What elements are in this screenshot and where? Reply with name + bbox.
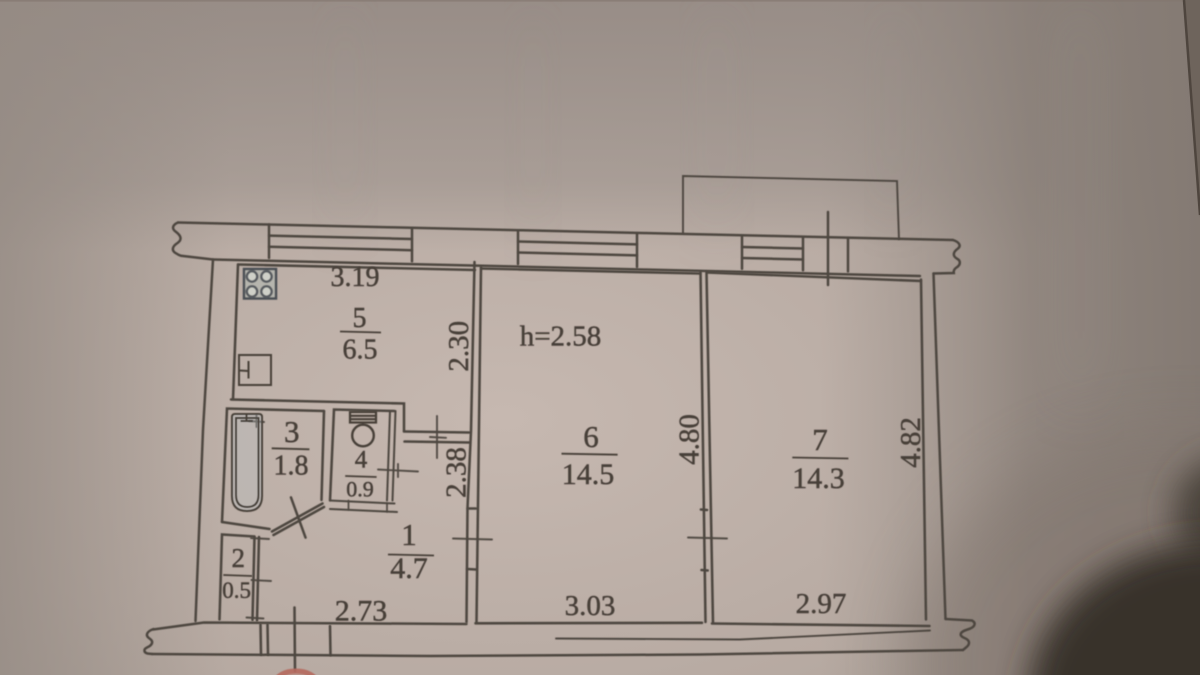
svg-text:2.30: 2.30 — [443, 321, 475, 372]
svg-text:7: 7 — [812, 422, 828, 457]
svg-text:0.9: 0.9 — [346, 477, 374, 502]
svg-text:4: 4 — [355, 447, 368, 474]
svg-text:0.5: 0.5 — [222, 578, 251, 603]
svg-text:2.97: 2.97 — [796, 588, 847, 620]
svg-text:5: 5 — [353, 303, 367, 334]
svg-text:3.03: 3.03 — [565, 590, 616, 622]
svg-text:6: 6 — [583, 419, 599, 454]
svg-text:4.82: 4.82 — [895, 417, 927, 468]
svg-text:2.38: 2.38 — [441, 447, 473, 498]
svg-text:2.73: 2.73 — [335, 595, 388, 628]
svg-text:4.80: 4.80 — [674, 414, 706, 465]
svg-text:4.7: 4.7 — [390, 552, 428, 585]
svg-text:14.3: 14.3 — [792, 462, 845, 495]
svg-text:2: 2 — [232, 543, 246, 573]
svg-text:3: 3 — [284, 414, 300, 449]
svg-text:14.5: 14.5 — [562, 458, 615, 491]
svg-text:1.8: 1.8 — [274, 451, 309, 482]
svg-text:6.5: 6.5 — [343, 335, 378, 366]
svg-text:h=2.58: h=2.58 — [520, 321, 602, 353]
svg-text:3.19: 3.19 — [331, 262, 380, 293]
svg-text:1: 1 — [401, 517, 417, 552]
